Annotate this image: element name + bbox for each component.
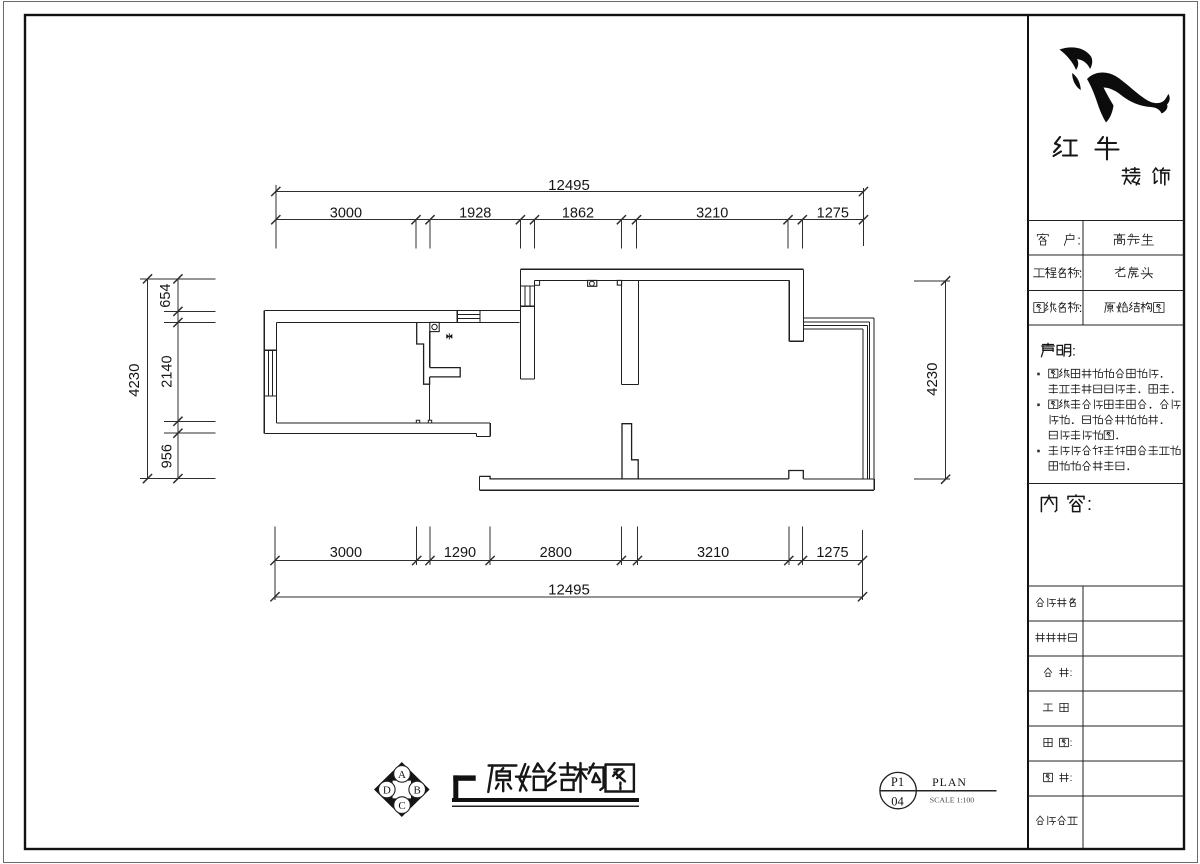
svg-text:3210: 3210 xyxy=(696,206,728,222)
svg-text::: : xyxy=(1070,738,1073,749)
svg-text:12495: 12495 xyxy=(548,582,590,599)
svg-text:PLAN: PLAN xyxy=(932,775,967,789)
svg-text:1275: 1275 xyxy=(816,545,848,561)
svg-text::: : xyxy=(1079,300,1083,315)
svg-text:3210: 3210 xyxy=(697,545,729,561)
svg-text:956: 956 xyxy=(159,444,175,468)
svg-text::: : xyxy=(1087,494,1092,514)
svg-text:3000: 3000 xyxy=(330,206,362,222)
svg-text:4230: 4230 xyxy=(924,363,941,396)
svg-text:1862: 1862 xyxy=(562,206,594,222)
svg-text::: : xyxy=(1070,773,1073,784)
svg-text:B: B xyxy=(414,784,421,796)
svg-text:P1: P1 xyxy=(891,775,904,789)
svg-text:1275: 1275 xyxy=(817,206,849,222)
svg-text:2140: 2140 xyxy=(159,355,175,387)
svg-text:D: D xyxy=(383,784,391,796)
svg-text::: : xyxy=(1072,343,1076,359)
svg-text:1928: 1928 xyxy=(459,206,491,222)
svg-text:3000: 3000 xyxy=(330,545,362,561)
svg-text:4230: 4230 xyxy=(126,364,143,397)
svg-text:1290: 1290 xyxy=(444,545,476,561)
svg-text:2800: 2800 xyxy=(540,545,572,561)
svg-text:C: C xyxy=(398,800,405,812)
svg-text:654: 654 xyxy=(158,283,174,307)
svg-text::: : xyxy=(1070,668,1073,679)
svg-text:04: 04 xyxy=(891,795,904,809)
svg-text:SCALE 1:100: SCALE 1:100 xyxy=(930,796,975,805)
svg-text:12495: 12495 xyxy=(548,177,590,194)
svg-text:A: A xyxy=(398,769,406,781)
svg-text::: : xyxy=(1077,233,1081,248)
svg-text::: : xyxy=(1079,266,1083,281)
